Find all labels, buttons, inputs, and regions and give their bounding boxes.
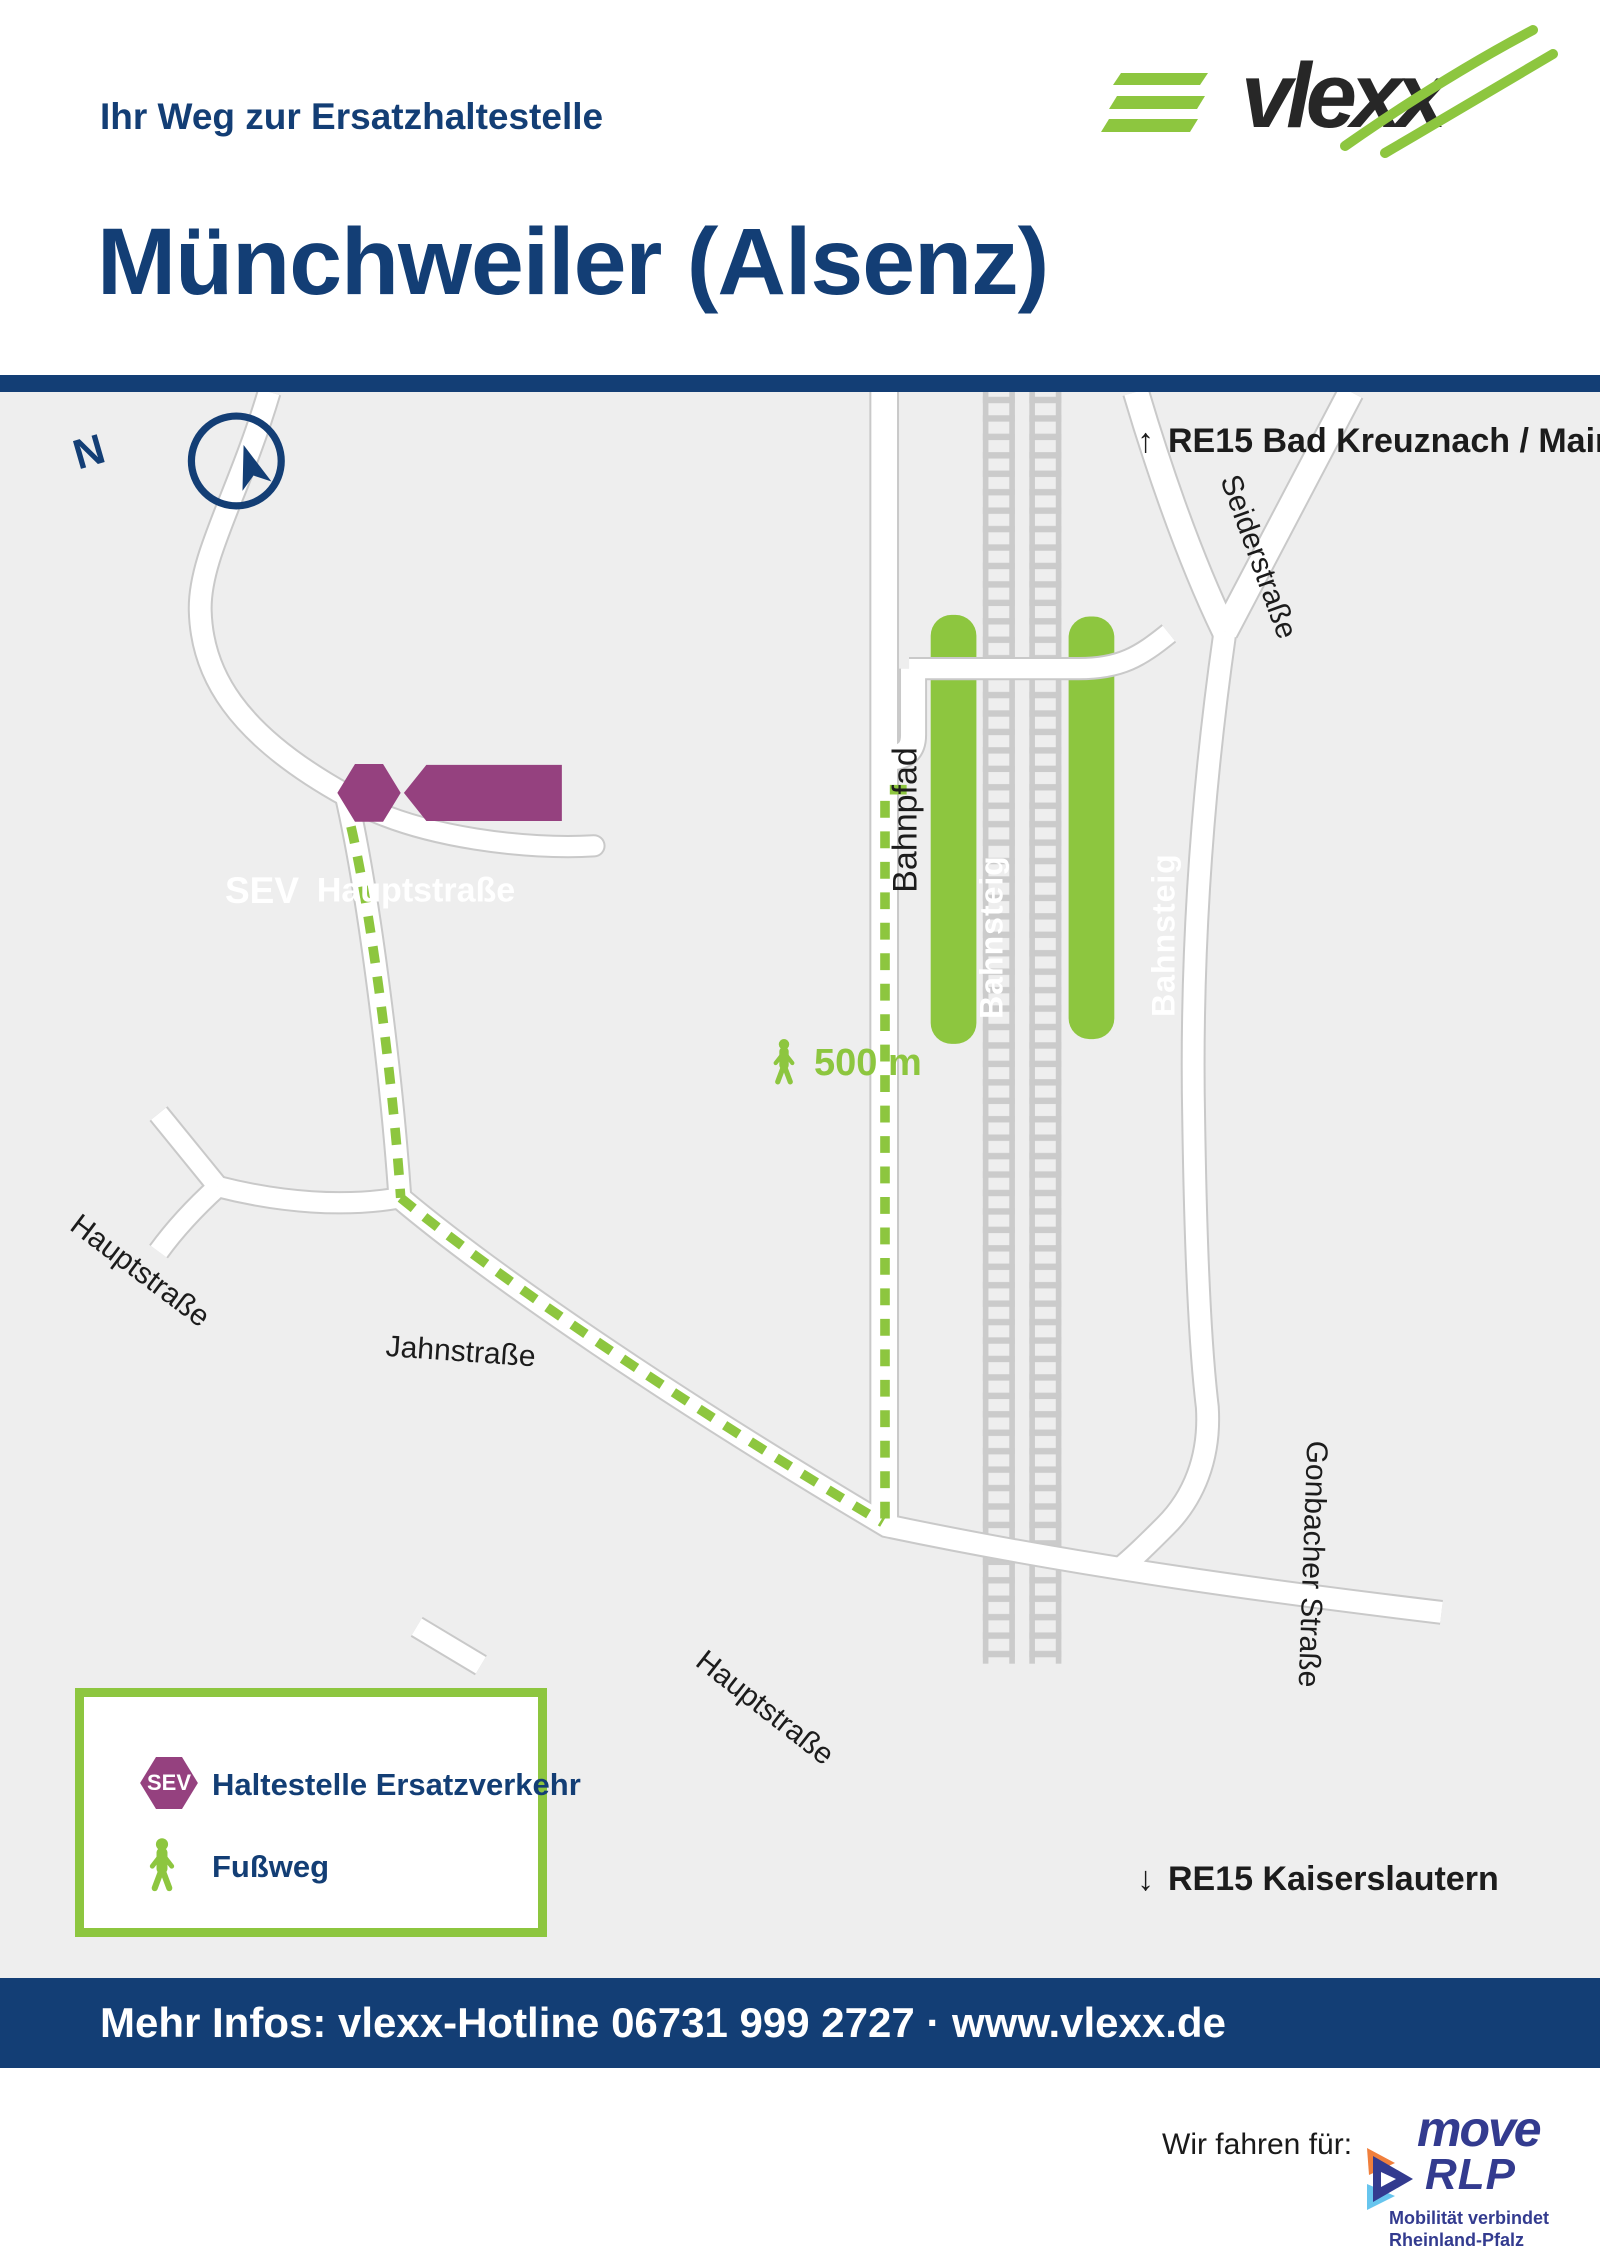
sev-stop-marker [337, 764, 562, 822]
legend-walking-person-icon [146, 1837, 178, 1893]
legend-item-sev-label: Haltestelle Ersatzverkehr [212, 1767, 581, 1803]
move-rlp-logo: move RLP Mobilität verbindet Rheinland-P… [1365, 2108, 1565, 2258]
sev-badge-label: SEV [225, 870, 299, 912]
platform-right-label: Bahnsteig [1146, 853, 1183, 1017]
legend-item-footpath-label: Fußweg [212, 1849, 329, 1885]
page-title: Münchweiler (Alsenz) [97, 208, 1048, 317]
hotline-text: Mehr Infos: vlexx-Hotline 06731 999 2727… [100, 1999, 1226, 2047]
page-subtitle: Ihr Weg zur Ersatzhaltestelle [100, 96, 603, 138]
legend-sev-badge-label: SEV [147, 1770, 191, 1796]
poster-page: Ihr Weg zur Ersatzhaltestelle vlexx Münc… [0, 0, 1600, 2263]
move-rlp-icon [1365, 2148, 1415, 2212]
walking-person-icon [770, 1038, 798, 1086]
map: Hauptstraße Jahnstraße Friedhofstraße Ha… [0, 392, 1600, 1978]
sev-stop-name: Hauptstraße [317, 872, 515, 911]
move-rlp-wordmark-rlp: RLP [1425, 2150, 1516, 2200]
legend: SEV Haltestelle Ersatzverkehr Fußweg [75, 1688, 547, 1937]
distance-label: 500 m [814, 1042, 922, 1085]
platform-left-label: Bahnsteig [974, 855, 1011, 1019]
vlexx-logo: vlexx [1093, 40, 1555, 155]
street-label-bahnpfad: Bahnpfad [887, 747, 926, 893]
move-rlp-subline-1: Mobilität verbindet [1389, 2208, 1549, 2229]
arrow-down-icon: ↓ [1137, 1860, 1154, 1899]
direction-south-text: RE15 Kaiserslautern [1168, 1860, 1499, 1898]
info-bar: Mehr Infos: vlexx-Hotline 06731 999 2727… [0, 1978, 1600, 2068]
vlexx-logo-swoosh-icon [1093, 40, 1555, 155]
direction-north-label: ↑RE15 Bad Kreuznach / Mainz [1137, 422, 1600, 461]
header-divider-bar [0, 375, 1600, 392]
direction-north-text: RE15 Bad Kreuznach / Mainz [1168, 422, 1600, 460]
railway-tracks [983, 392, 1062, 1664]
move-rlp-subline-2: Rheinland-Pfalz [1389, 2230, 1524, 2251]
direction-south-label: ↓RE15 Kaiserslautern [1137, 1860, 1499, 1899]
arrow-up-icon: ↑ [1137, 422, 1154, 461]
footer-tagline: Wir fahren für: [1162, 2128, 1352, 2162]
